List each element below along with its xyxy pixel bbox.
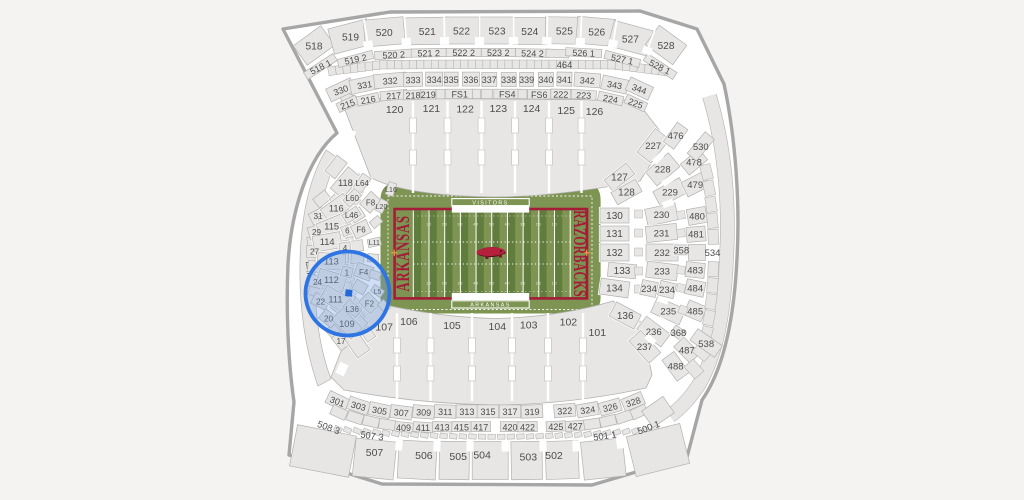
svg-text:30: 30 [458, 282, 464, 286]
svg-text:521: 521 [419, 27, 436, 38]
svg-text:10: 10 [426, 282, 432, 286]
svg-text:114: 114 [320, 237, 335, 247]
svg-text:521 2: 521 2 [417, 48, 440, 58]
svg-text:504: 504 [473, 450, 491, 462]
svg-text:522: 522 [453, 27, 470, 38]
svg-text:336: 336 [463, 75, 478, 85]
svg-text:483: 483 [687, 265, 703, 276]
svg-text:524 2: 524 2 [521, 48, 544, 58]
svg-text:464: 464 [557, 60, 573, 70]
svg-text:519: 519 [342, 33, 359, 44]
svg-text:227: 227 [645, 141, 661, 152]
svg-text:L11: L11 [369, 240, 380, 247]
svg-text:335: 335 [444, 75, 459, 85]
svg-text:123: 123 [490, 103, 508, 115]
svg-text:ARKANSAS: ARKANSAS [470, 303, 511, 309]
svg-text:319: 319 [524, 407, 539, 417]
svg-text:40: 40 [473, 282, 479, 286]
svg-text:506: 506 [415, 450, 433, 462]
svg-text:527: 527 [622, 34, 639, 45]
svg-text:342: 342 [579, 75, 595, 86]
svg-text:526 1: 526 1 [572, 48, 595, 59]
svg-text:485: 485 [687, 306, 703, 317]
svg-text:FS1: FS1 [451, 90, 468, 100]
svg-text:102: 102 [560, 317, 578, 329]
svg-text:417: 417 [473, 422, 488, 432]
svg-text:233: 233 [654, 266, 670, 277]
svg-text:230: 230 [654, 210, 670, 221]
svg-text:30: 30 [520, 223, 526, 227]
svg-text:518: 518 [306, 42, 323, 53]
svg-text:322: 322 [557, 406, 573, 417]
svg-text:526: 526 [588, 28, 605, 39]
svg-text:311: 311 [438, 407, 453, 417]
svg-text:128: 128 [618, 188, 635, 199]
svg-text:522 2: 522 2 [452, 48, 475, 58]
svg-text:228: 228 [655, 165, 671, 176]
svg-text:126: 126 [586, 106, 604, 118]
svg-text:524: 524 [521, 27, 538, 38]
svg-text:29: 29 [312, 228, 322, 237]
svg-text:116: 116 [329, 203, 344, 213]
svg-text:488: 488 [668, 362, 684, 373]
svg-text:L46: L46 [345, 211, 359, 220]
svg-text:125: 125 [557, 105, 575, 117]
svg-text:219: 219 [421, 90, 436, 100]
svg-text:232: 232 [654, 248, 670, 259]
svg-text:340: 340 [538, 75, 553, 85]
svg-text:337: 337 [482, 75, 497, 85]
svg-text:341: 341 [557, 75, 572, 85]
svg-text:40: 40 [505, 282, 511, 286]
svg-text:503: 503 [520, 452, 538, 464]
svg-text:115: 115 [324, 222, 339, 232]
svg-text:420: 420 [502, 422, 517, 432]
svg-text:523 2: 523 2 [487, 48, 510, 58]
svg-text:307: 307 [393, 407, 409, 418]
svg-text:122: 122 [456, 104, 474, 116]
svg-text:40: 40 [473, 223, 479, 227]
svg-text:317: 317 [502, 407, 517, 417]
svg-text:476: 476 [668, 131, 684, 142]
svg-text:425: 425 [548, 422, 563, 432]
svg-text:505: 505 [449, 451, 467, 463]
svg-text:121: 121 [423, 103, 441, 115]
svg-text:120: 120 [386, 104, 404, 116]
svg-text:523: 523 [489, 27, 506, 38]
svg-text:VISITORS: VISITORS [472, 200, 508, 206]
svg-text:130: 130 [606, 211, 623, 222]
svg-text:332: 332 [382, 76, 398, 87]
svg-text:479: 479 [687, 180, 703, 191]
svg-text:F6: F6 [356, 226, 366, 235]
svg-text:235: 235 [660, 306, 676, 317]
svg-text:124: 124 [523, 103, 541, 115]
svg-text:339: 339 [519, 75, 534, 85]
svg-text:528: 528 [658, 41, 675, 52]
svg-text:10: 10 [552, 223, 558, 227]
svg-text:525: 525 [556, 27, 573, 38]
svg-text:530: 530 [693, 142, 709, 153]
svg-text:131: 131 [606, 229, 623, 240]
svg-text:101: 101 [589, 327, 607, 339]
svg-text:333: 333 [405, 75, 420, 85]
svg-text:136: 136 [617, 311, 634, 322]
svg-text:50: 50 [489, 282, 495, 286]
svg-text:FS6: FS6 [531, 90, 548, 100]
svg-text:103: 103 [520, 320, 538, 332]
svg-text:106: 106 [400, 316, 418, 328]
svg-text:218: 218 [405, 90, 420, 100]
svg-text:132: 132 [606, 248, 623, 259]
svg-text:10: 10 [426, 223, 432, 227]
svg-text:FS4: FS4 [499, 90, 516, 100]
svg-text:534: 534 [705, 248, 721, 259]
svg-text:223: 223 [576, 90, 592, 101]
svg-text:324: 324 [580, 404, 596, 416]
svg-text:F8: F8 [366, 199, 376, 208]
svg-text:20: 20 [536, 223, 542, 227]
svg-text:10: 10 [552, 282, 558, 286]
svg-text:133: 133 [614, 266, 631, 277]
svg-text:104: 104 [489, 321, 507, 333]
svg-text:538: 538 [698, 339, 714, 350]
svg-text:20: 20 [442, 282, 448, 286]
svg-text:ARKANSAS: ARKANSAS [393, 215, 414, 291]
svg-text:313: 313 [459, 407, 474, 417]
svg-text:507: 507 [366, 447, 384, 459]
svg-text:6: 6 [345, 226, 350, 235]
svg-text:234: 234 [641, 284, 657, 295]
svg-text:234: 234 [659, 285, 675, 296]
svg-text:20: 20 [442, 223, 448, 227]
svg-text:484: 484 [687, 283, 703, 294]
svg-text:481: 481 [688, 230, 704, 241]
svg-text:520: 520 [376, 28, 393, 39]
svg-text:RAZORBACKS: RAZORBACKS [569, 210, 588, 297]
svg-text:237: 237 [637, 342, 653, 353]
svg-text:338: 338 [501, 75, 516, 85]
svg-text:20: 20 [536, 282, 542, 286]
svg-text:L16: L16 [385, 187, 397, 194]
svg-text:315: 315 [480, 407, 495, 417]
svg-text:229: 229 [662, 188, 678, 199]
svg-text:40: 40 [505, 223, 511, 227]
svg-text:358: 358 [673, 245, 689, 256]
svg-text:415: 415 [454, 422, 469, 432]
svg-text:17: 17 [336, 337, 346, 346]
svg-text:31: 31 [313, 212, 323, 221]
svg-text:334: 334 [427, 75, 442, 85]
svg-text:413: 413 [435, 422, 450, 432]
svg-text:118: 118 [338, 178, 353, 188]
svg-text:L20: L20 [376, 204, 388, 211]
svg-text:134: 134 [606, 284, 623, 295]
svg-text:30: 30 [458, 223, 464, 227]
svg-text:502: 502 [545, 450, 563, 462]
svg-text:50: 50 [489, 223, 495, 227]
svg-text:231: 231 [654, 228, 670, 239]
svg-text:L60: L60 [346, 194, 360, 203]
svg-text:368: 368 [670, 328, 686, 339]
svg-text:411: 411 [416, 423, 430, 433]
svg-text:217: 217 [386, 90, 402, 101]
svg-text:480: 480 [689, 211, 705, 222]
svg-text:309: 309 [416, 407, 432, 418]
svg-text:520 2: 520 2 [382, 49, 405, 60]
svg-text:127: 127 [611, 173, 628, 184]
svg-text:105: 105 [443, 320, 461, 332]
svg-text:427: 427 [568, 421, 583, 431]
svg-text:L64: L64 [356, 179, 370, 188]
svg-text:222: 222 [553, 89, 568, 99]
svg-text:27: 27 [310, 248, 320, 257]
svg-text:422: 422 [520, 422, 535, 432]
svg-text:30: 30 [520, 282, 526, 286]
